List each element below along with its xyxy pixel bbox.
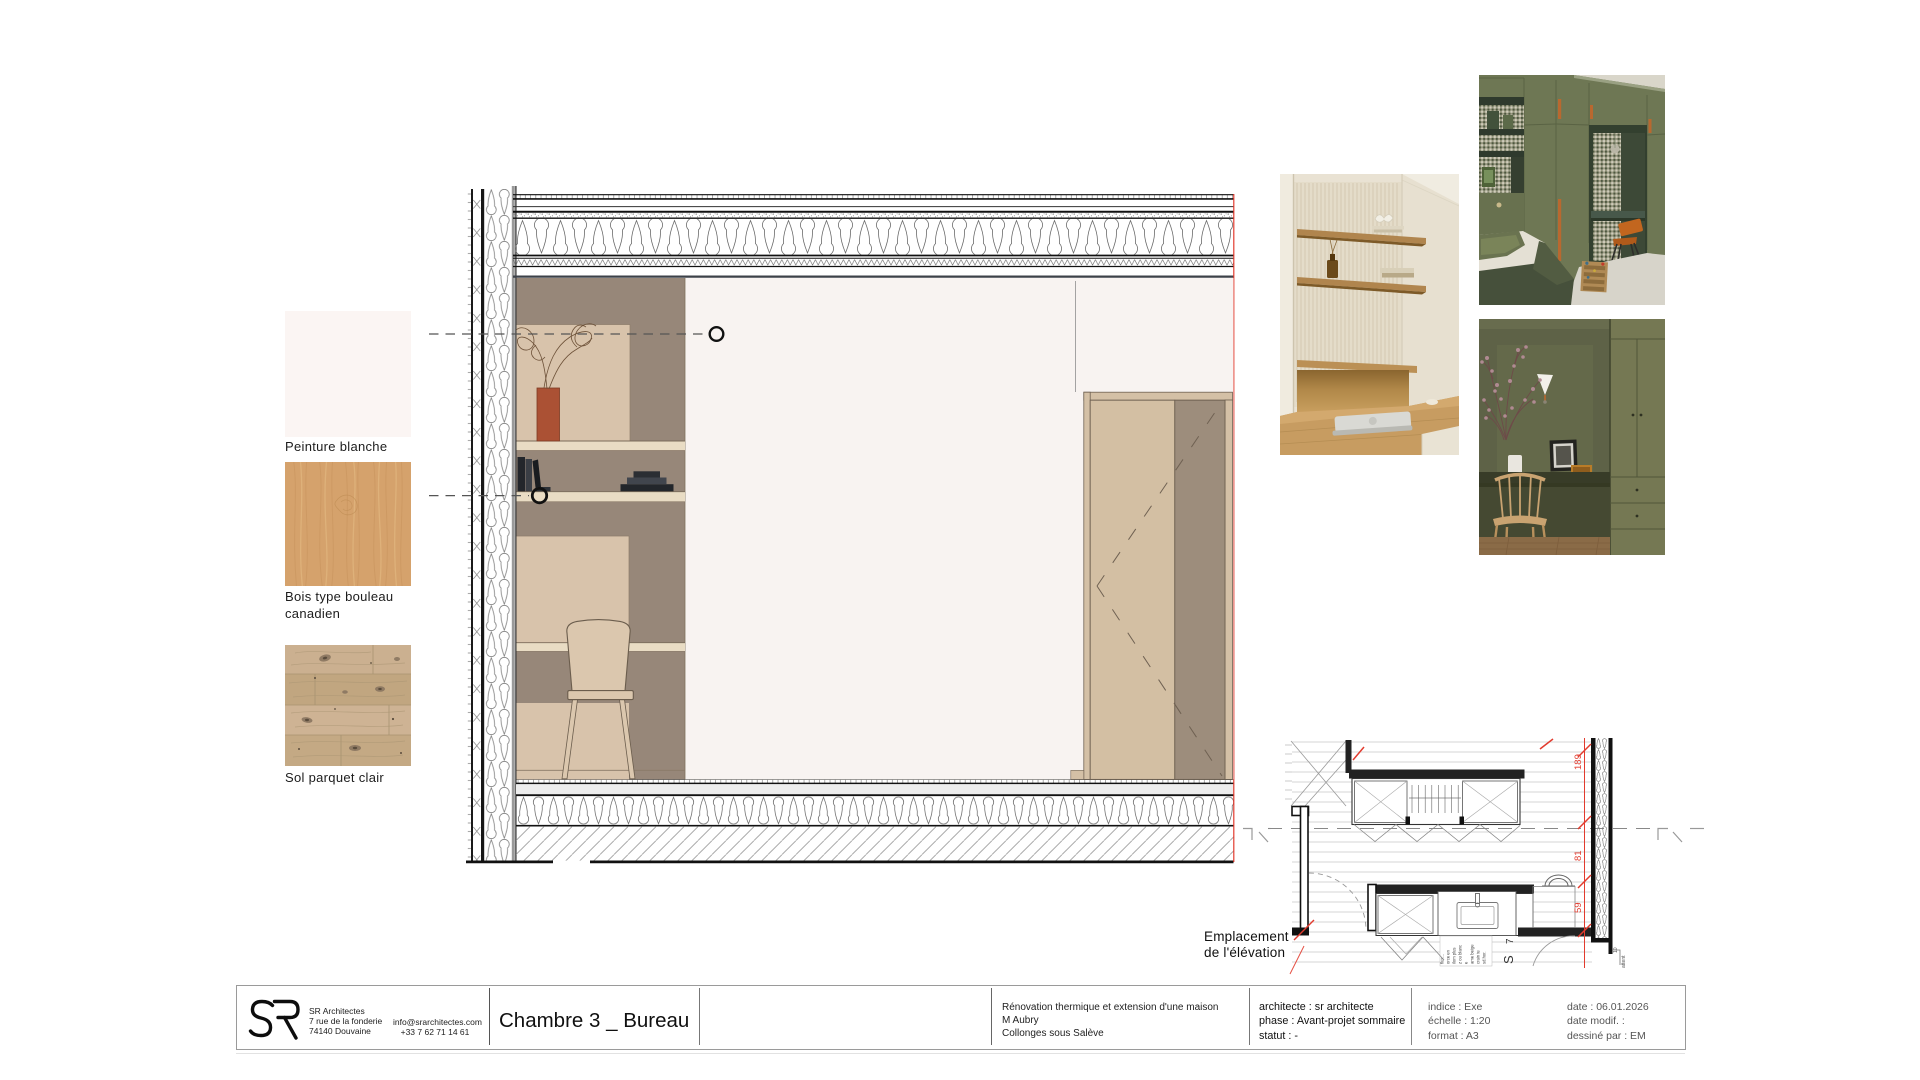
svg-text:ilom plus: ilom plus (1452, 947, 1457, 964)
svg-text:attent: attent (1621, 955, 1627, 968)
svg-text:59: 59 (1573, 902, 1584, 913)
svg-text:81: 81 (1573, 850, 1584, 861)
svg-text:10: 10 (1613, 947, 1619, 953)
svg-text:z ou blanc: z ou blanc (1458, 945, 1463, 964)
svg-text:sd.hor.: sd.hor. (1482, 951, 1487, 964)
svg-text:ame beige: ame beige (1470, 944, 1475, 964)
svg-text:S: S (1501, 955, 1516, 964)
svg-text:7: 7 (1505, 938, 1516, 944)
svg-text:189: 189 (1573, 754, 1584, 770)
svg-text:orce en: orce en (1446, 949, 1451, 964)
svg-text:crain te: crain te (1476, 950, 1481, 964)
